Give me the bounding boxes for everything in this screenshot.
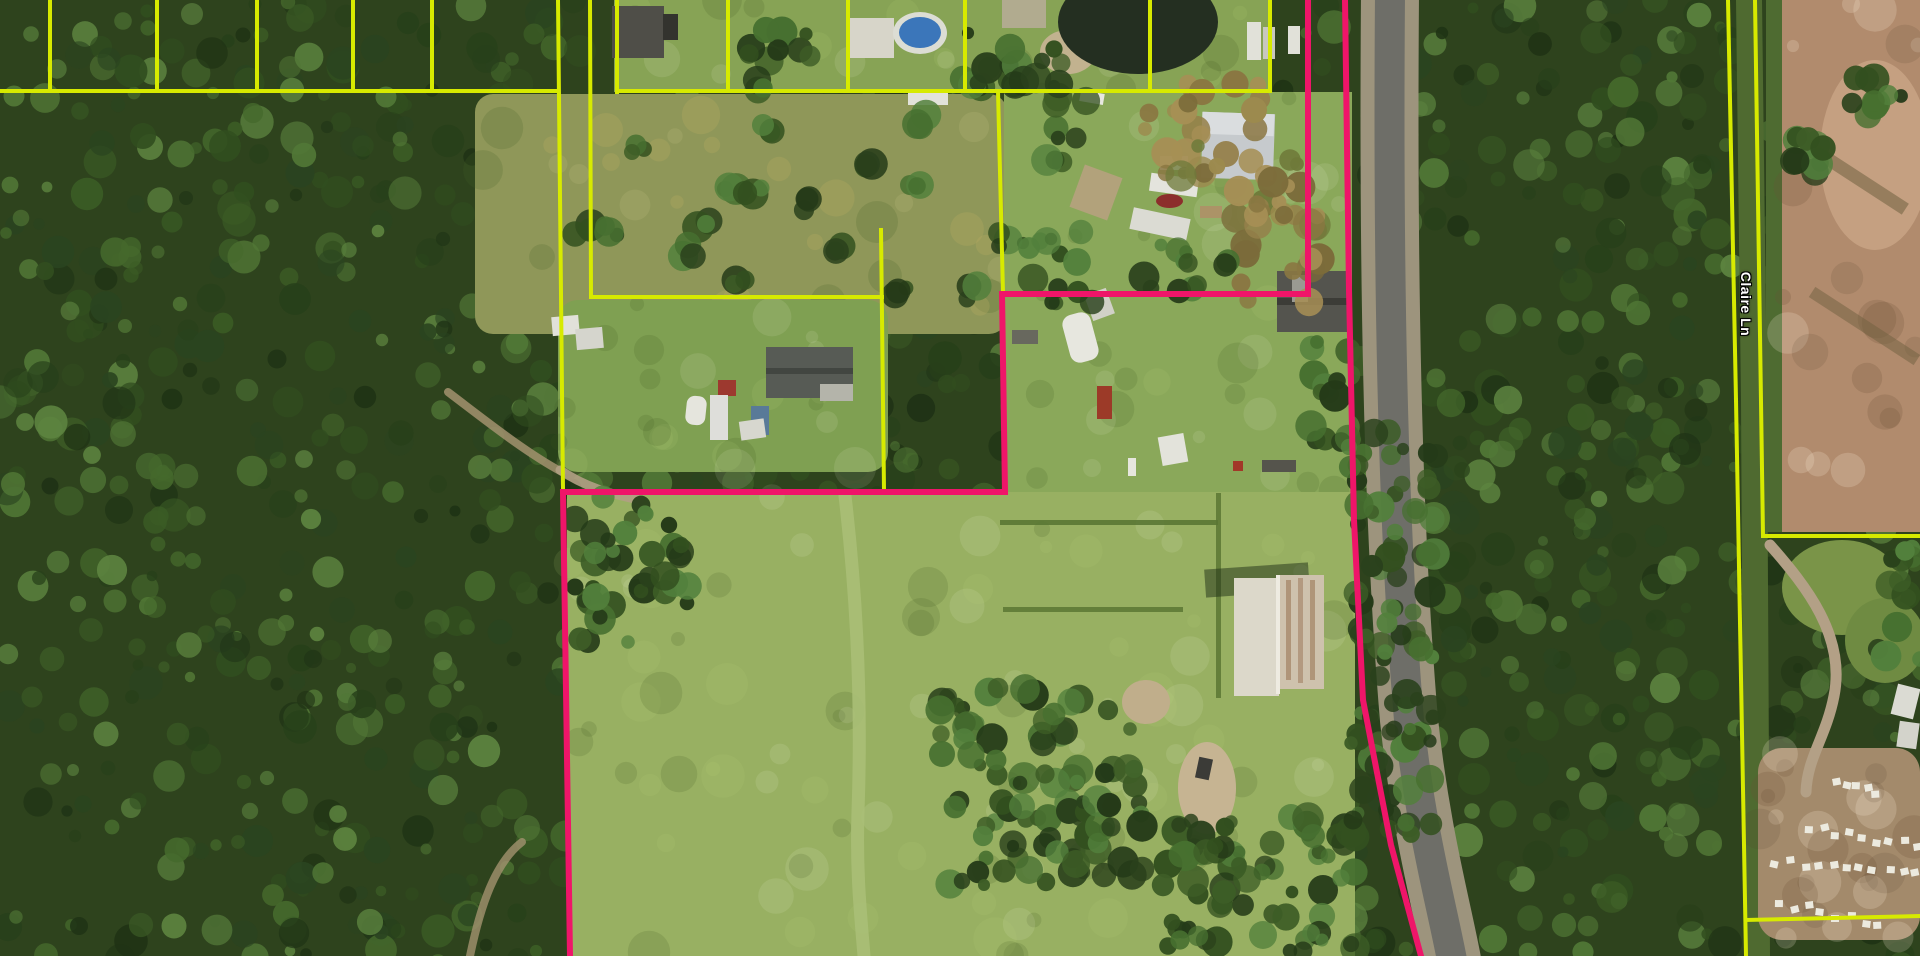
house-top (847, 18, 894, 58)
tractor (1097, 386, 1112, 419)
map-canvas[interactable] (0, 0, 1920, 956)
nb-rv (710, 395, 728, 440)
hedge-row-2 (1003, 607, 1183, 612)
parcel-line (590, 0, 591, 297)
pasture-bit-2 (1233, 461, 1243, 471)
white-van (1158, 433, 1189, 466)
nb-house-ridge (766, 368, 853, 374)
barn-ridge (1276, 575, 1280, 694)
rv-top-3 (1288, 26, 1300, 54)
barn-roof-top (612, 6, 664, 58)
rv-east-2 (1896, 721, 1919, 750)
rv-top-1 (1247, 22, 1261, 60)
barn-left (1234, 578, 1279, 696)
hedge-row-1 (1000, 520, 1218, 525)
nb-trailer (739, 418, 766, 440)
shed-top (1002, 0, 1046, 28)
crate (1200, 206, 1222, 218)
east-green-strip (1766, 0, 1784, 532)
nb-deck (820, 384, 853, 401)
truck-top (663, 14, 678, 40)
barn-rust-1 (1286, 580, 1291, 680)
barn-rust-3 (1310, 580, 1315, 680)
aerial-map[interactable]: Claire Ln (0, 0, 1920, 956)
nb-rv-3 (575, 327, 604, 350)
nb-red-car (718, 380, 736, 396)
pasture-bit-1 (1128, 458, 1136, 476)
barn-rust-2 (1298, 578, 1303, 683)
red-trampoline (1156, 194, 1183, 208)
sel-trailer-dark (1012, 330, 1038, 344)
sand-patch-1 (1122, 680, 1170, 724)
pool (899, 17, 941, 48)
pasture-bit-3 (1262, 460, 1296, 472)
nb-boat (685, 395, 708, 426)
